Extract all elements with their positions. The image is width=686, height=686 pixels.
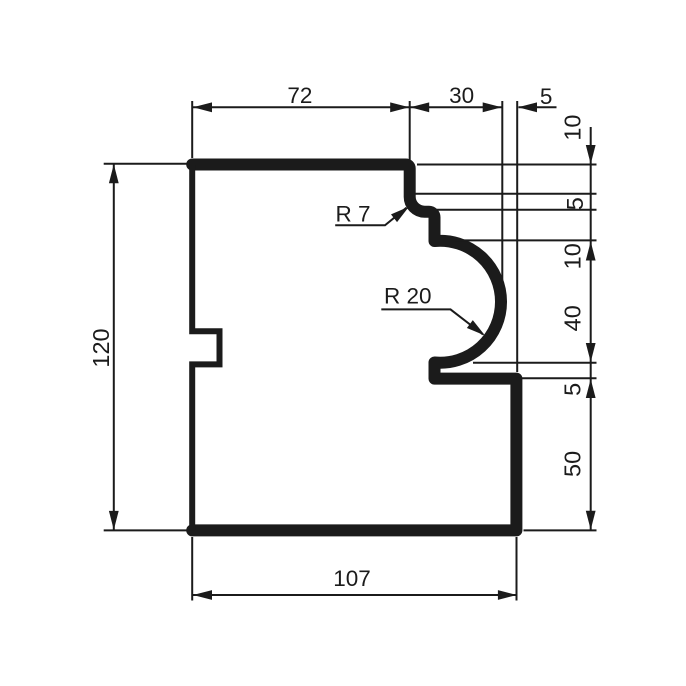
svg-text:R 7: R 7 [336, 201, 371, 226]
svg-text:10: 10 [560, 115, 586, 141]
svg-text:10: 10 [560, 243, 586, 269]
svg-text:120: 120 [88, 328, 114, 367]
svg-text:72: 72 [287, 83, 312, 108]
svg-text:5: 5 [560, 383, 586, 396]
svg-text:50: 50 [560, 451, 586, 477]
svg-text:107: 107 [333, 566, 371, 591]
svg-text:40: 40 [560, 305, 586, 331]
svg-text:5: 5 [540, 84, 553, 109]
svg-text:30: 30 [449, 83, 474, 108]
svg-text:R 20: R 20 [384, 284, 432, 309]
svg-text:5: 5 [562, 197, 588, 210]
